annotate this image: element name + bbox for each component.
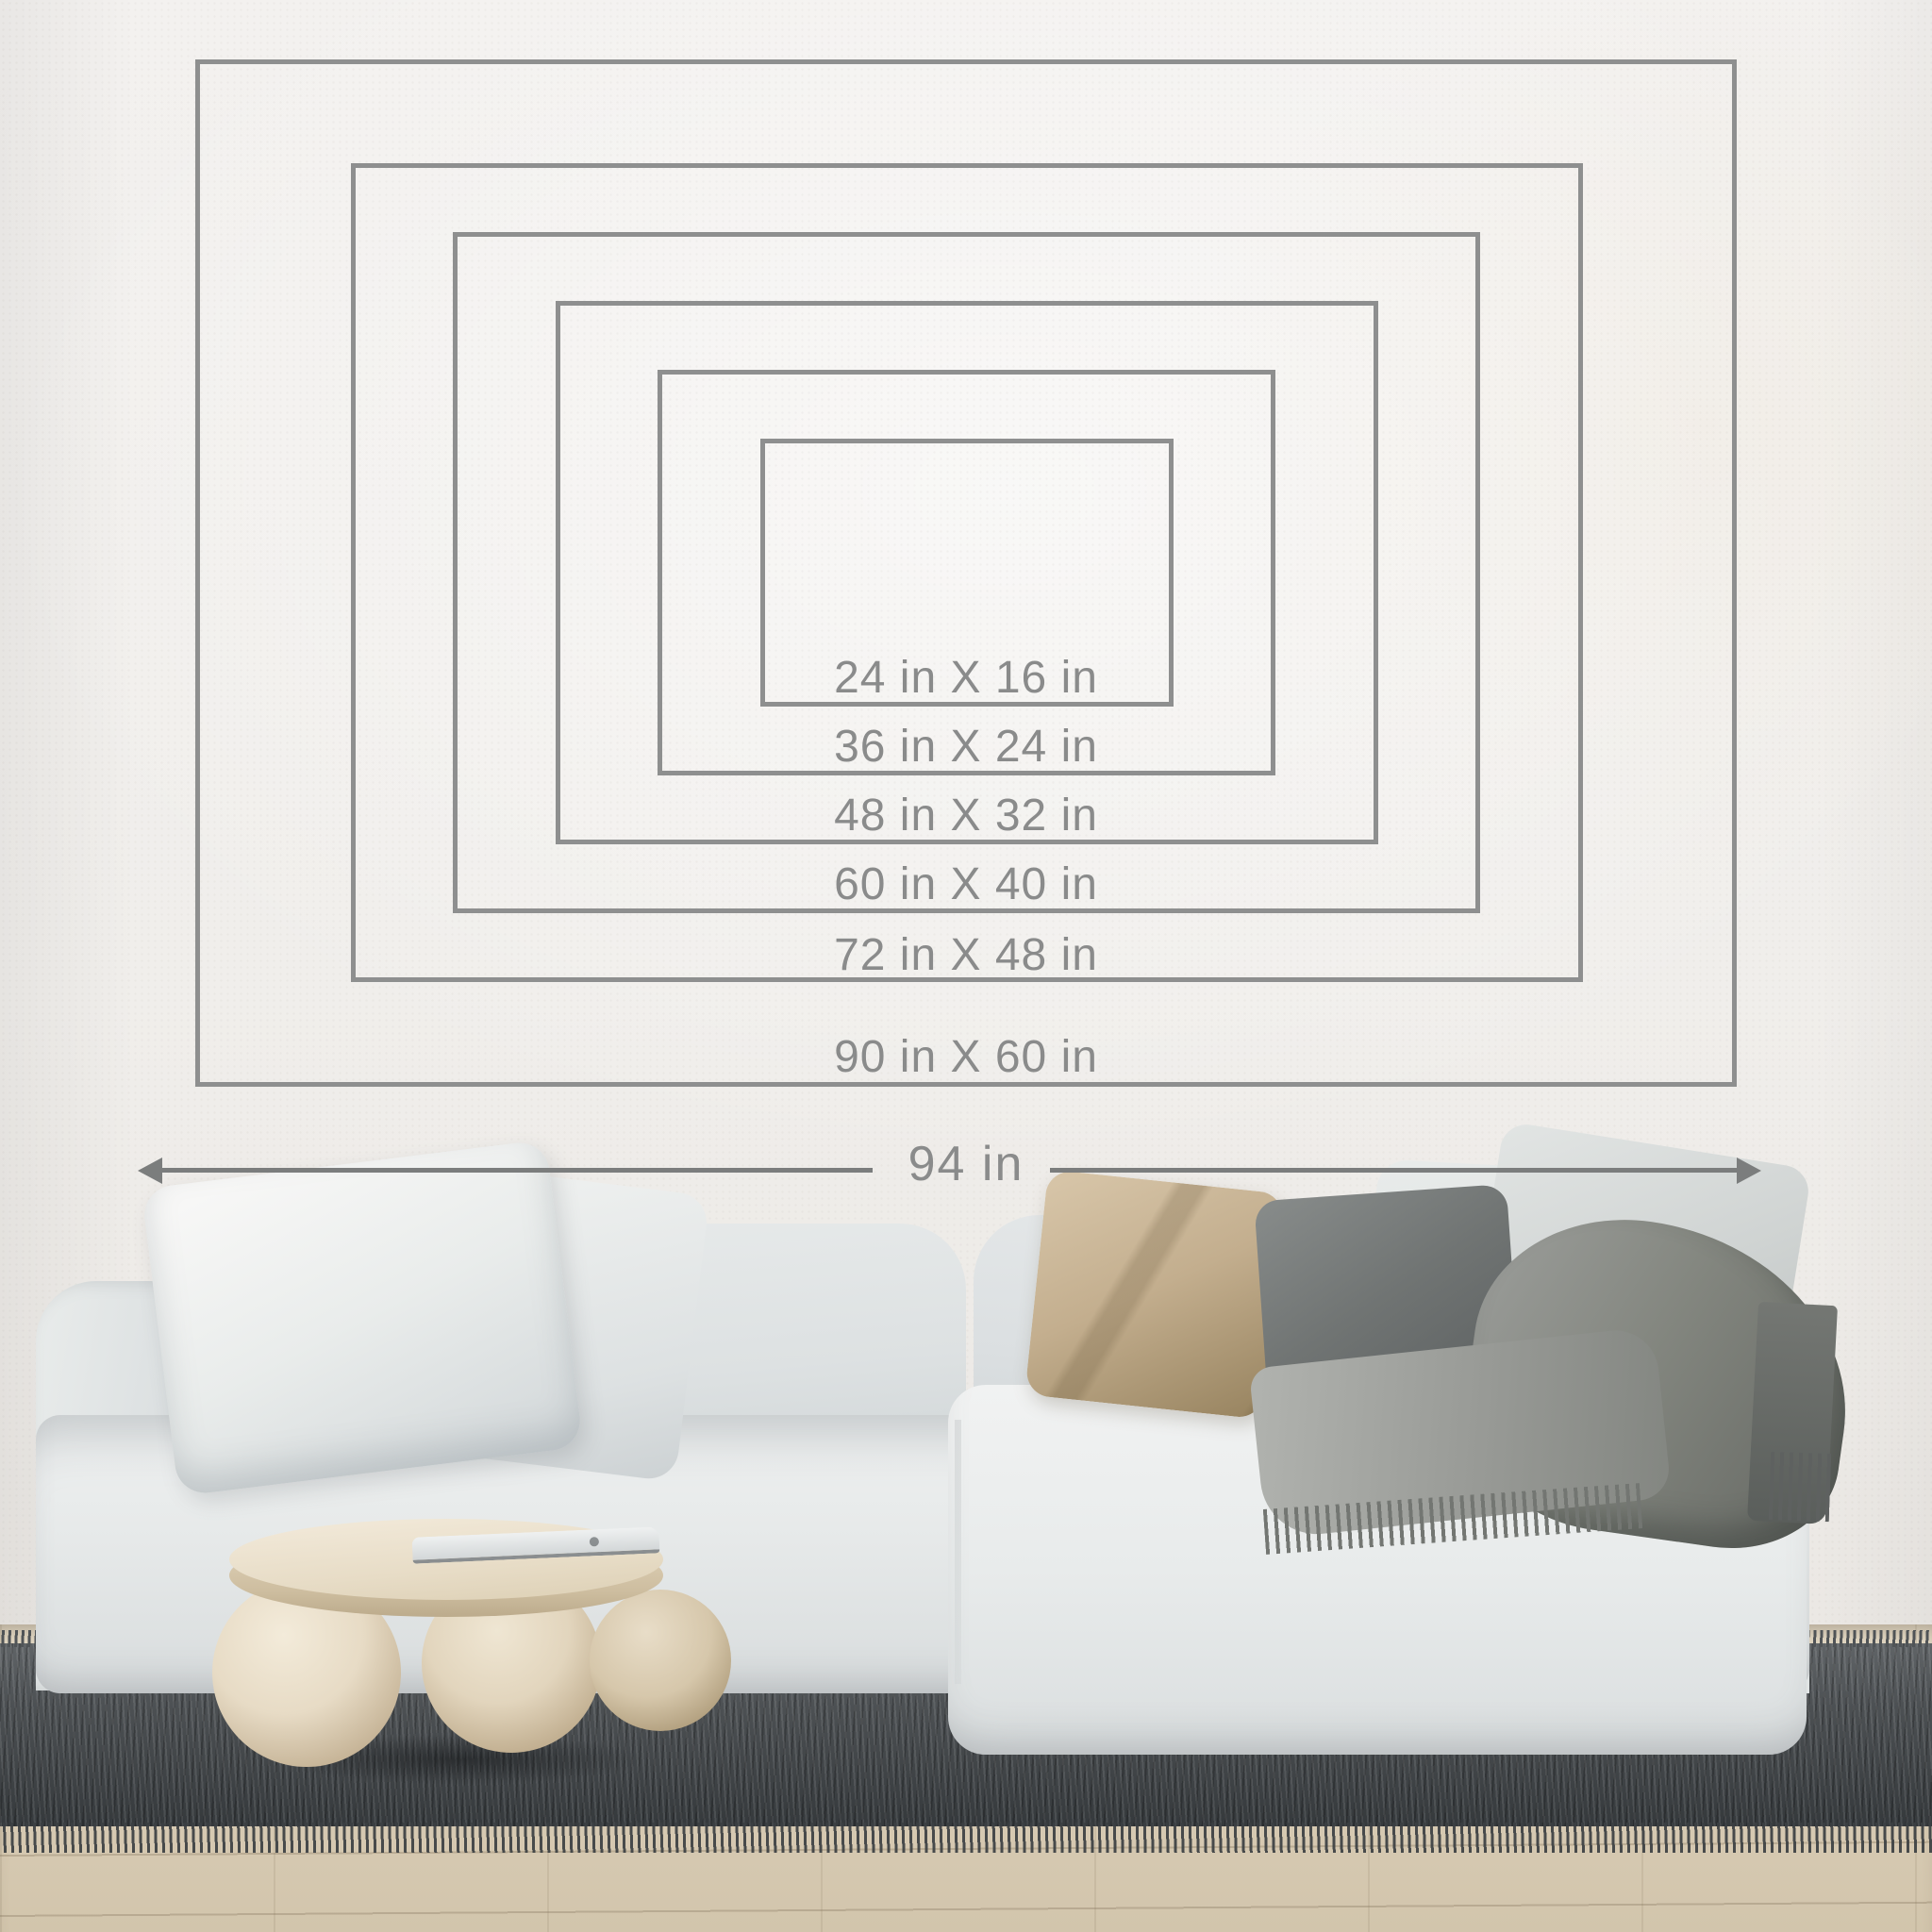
blanket-fringe-side — [1769, 1452, 1831, 1522]
pillow-beige — [1024, 1169, 1285, 1419]
size-rect-90x60 — [195, 59, 1737, 1087]
size-label-90x60: 90 in X 60 in — [0, 1030, 1932, 1085]
table-ball-leg-right — [590, 1590, 731, 1731]
product-size-chart-mockup: 24 in X 16 in36 in X 24 in48 in X 32 in6… — [0, 0, 1932, 1932]
sofa-seat-seam — [955, 1420, 961, 1684]
total-width-label: 94 in — [0, 1135, 1932, 1193]
